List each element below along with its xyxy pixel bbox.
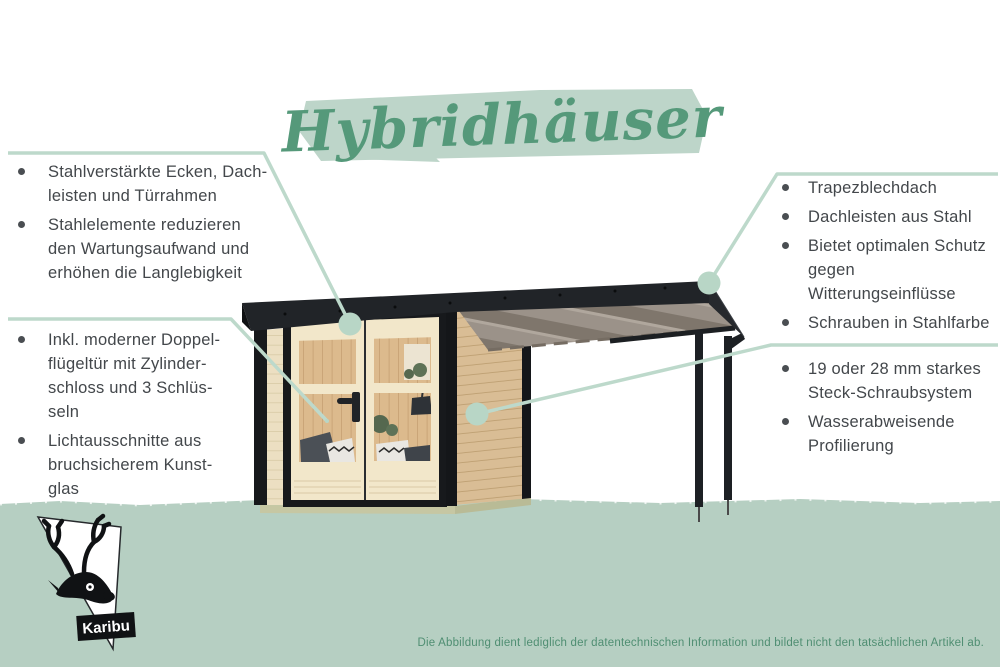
annotation-wall-system: 19 oder 28 mm starkes Steck-Schraubsyste…: [772, 357, 998, 463]
marker-door-frame: [339, 313, 362, 336]
canopy-post-front: [724, 336, 732, 500]
brand-name: Karibu: [82, 617, 131, 637]
feature-list: Trapezblechdach Dachleisten aus Stahl Bi…: [772, 176, 998, 335]
annotation-door: Inkl. moderner Doppel- flügeltür mit Zyl…: [14, 328, 276, 506]
feature-item: Inkl. moderner Doppel- flügeltür mit Zyl…: [14, 328, 276, 424]
annotation-roof: Trapezblechdach Dachleisten aus Stahl Bi…: [772, 176, 998, 340]
disclaimer-text: Die Abbildung dient lediglich der datent…: [284, 637, 984, 649]
feature-item: Trapezblechdach: [772, 176, 998, 200]
feature-item: Wasserabweisende Profilierung: [772, 410, 998, 458]
feature-list: Inkl. moderner Doppel- flügeltür mit Zyl…: [14, 328, 276, 501]
marker-door-tip: [325, 419, 329, 423]
feature-item: Lichtausschnitte aus bruchsicherem Kunst…: [14, 429, 276, 501]
feature-list: Stahlverstärkte Ecken, Dach- leisten und…: [14, 160, 276, 285]
feature-item: Schrauben in Stahlfarbe: [772, 311, 998, 335]
canopy-post-rear: [695, 331, 703, 507]
door-handle: [352, 392, 360, 422]
feature-item: Stahlelemente reduzieren den Wartungsauf…: [14, 213, 276, 285]
double-door: [283, 310, 447, 507]
marker-roof-corner: [698, 272, 721, 295]
canopy-strut: [724, 333, 745, 352]
feature-item: 19 oder 28 mm starkes Steck-Schraubsyste…: [772, 357, 998, 405]
marker-side-wall: [466, 403, 489, 426]
feature-item: Dachleisten aus Stahl: [772, 205, 998, 229]
feature-item: Stahlverstärkte Ecken, Dach- leisten und…: [14, 160, 276, 208]
feature-list: 19 oder 28 mm starkes Steck-Schraubsyste…: [772, 357, 998, 458]
feature-item: Bietet optimalen Schutz gegen Witterungs…: [772, 234, 998, 306]
infographic-page: Hybridhäuser: [0, 0, 1000, 667]
annotation-steel-corners: Stahlverstärkte Ecken, Dach- leisten und…: [14, 160, 276, 290]
